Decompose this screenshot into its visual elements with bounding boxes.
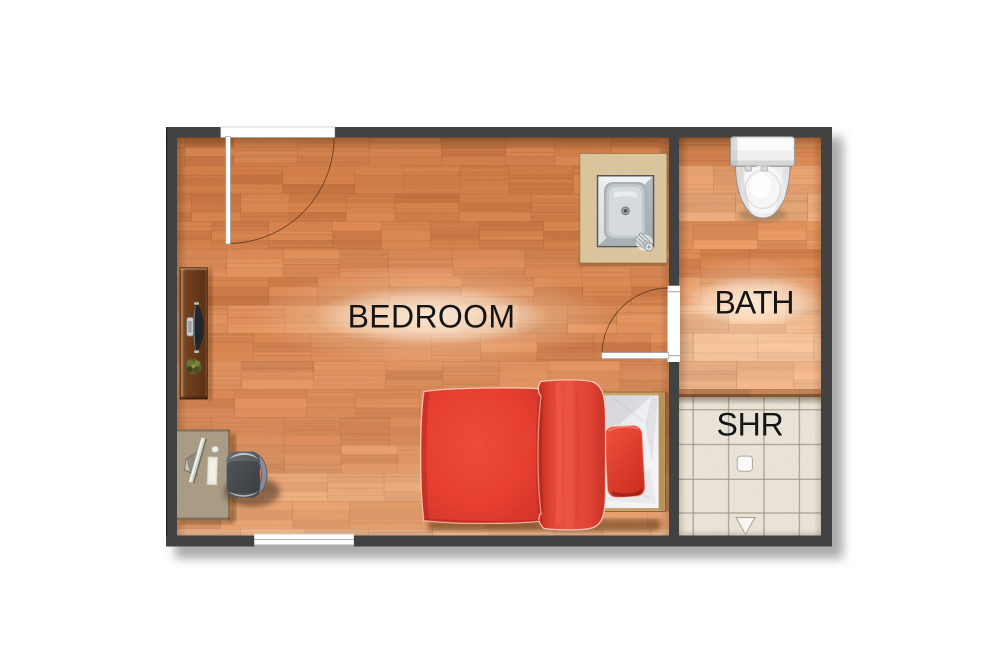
svg-text:BATH: BATH — [715, 285, 794, 321]
svg-text:BEDROOM: BEDROOM — [348, 298, 516, 334]
svg-text:SHR: SHR — [717, 406, 784, 442]
